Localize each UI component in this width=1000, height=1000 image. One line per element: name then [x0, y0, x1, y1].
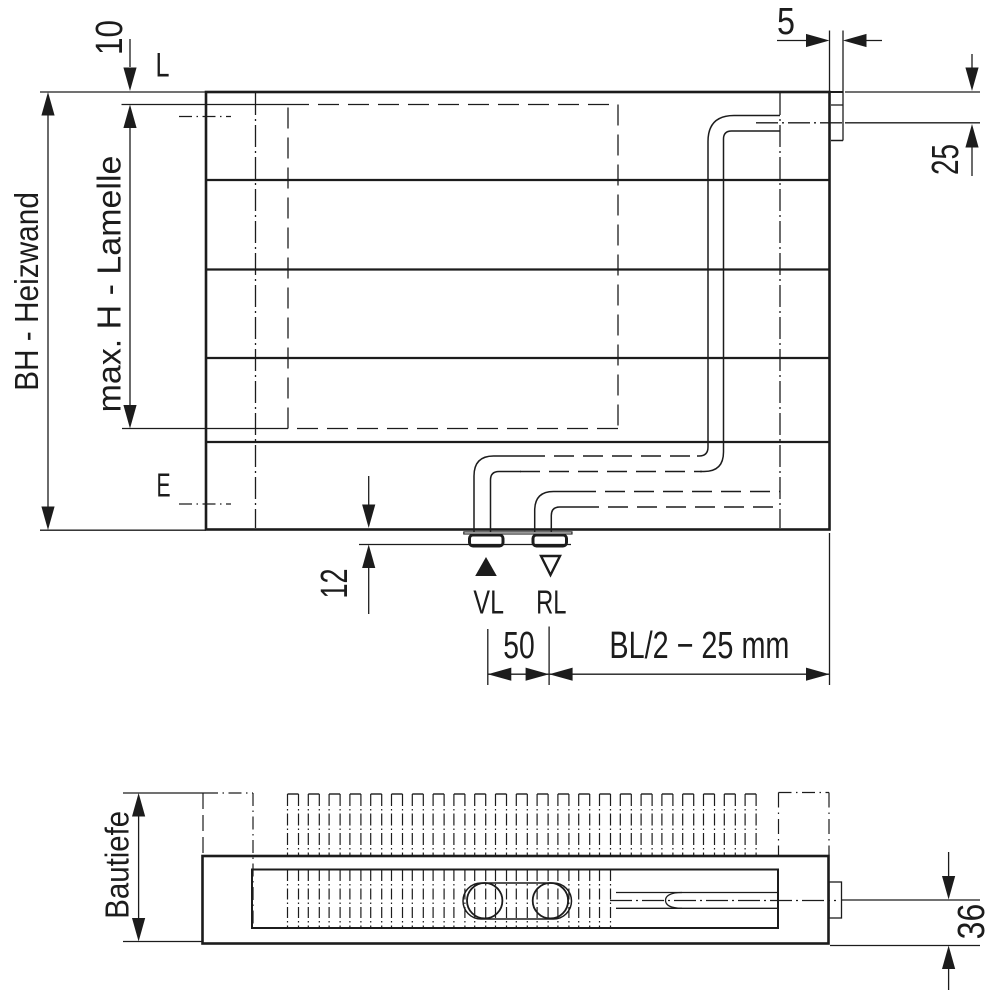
svg-text:5: 5	[777, 1, 795, 43]
svg-text:36: 36	[950, 904, 992, 940]
svg-text:BL/2 − 25 mm: BL/2 − 25 mm	[609, 624, 789, 667]
svg-text:RL: RL	[536, 585, 566, 622]
svg-text:VL: VL	[473, 585, 504, 621]
svg-text:10: 10	[88, 20, 131, 55]
svg-text:L: L	[156, 47, 170, 85]
svg-text:50: 50	[503, 625, 534, 667]
svg-text:E: E	[157, 467, 171, 504]
svg-text:max. H - Lamelle: max. H - Lamelle	[92, 156, 128, 413]
svg-text:Bautiefe: Bautiefe	[99, 811, 136, 919]
svg-text:BH - Heizwand: BH - Heizwand	[9, 192, 46, 391]
svg-text:12: 12	[312, 569, 355, 599]
svg-text:25: 25	[925, 144, 967, 175]
